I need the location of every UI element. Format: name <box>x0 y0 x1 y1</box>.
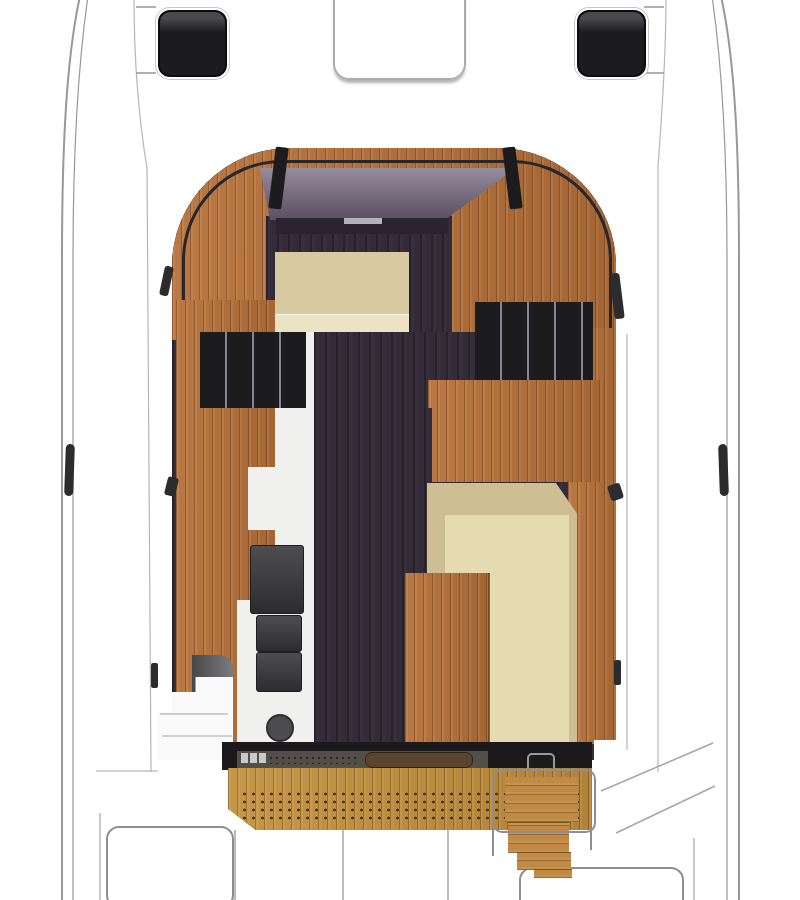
handrail-leg-port <box>492 829 494 856</box>
port-deck-hatch <box>158 10 227 77</box>
port-hull-inner-line <box>73 0 88 900</box>
starboard-cleat <box>718 444 729 496</box>
starboard-louvered-lockers <box>475 302 593 380</box>
galley-hatch-panel-2 <box>256 652 302 692</box>
stanchion-port-aft <box>151 663 158 688</box>
cabin-clip <box>172 148 616 760</box>
v-berth-mattress <box>275 252 409 314</box>
starboard-deck-edge-line <box>658 0 666 772</box>
companionway-step-low <box>517 852 571 870</box>
starboard-deck-hatch <box>577 10 646 77</box>
port-louvered-lockers <box>200 332 308 408</box>
boat-floorplan <box>0 0 800 900</box>
deck-patch-starboard <box>594 740 618 764</box>
grab-rod <box>365 752 473 768</box>
cockpit-seat-panel-port <box>107 827 233 900</box>
dinette-table <box>405 573 490 760</box>
handrail-leg-starboard <box>590 829 592 850</box>
step-handrail <box>492 769 596 833</box>
cabin <box>172 148 616 760</box>
stanchion-starboard-aft <box>614 660 621 685</box>
track-detail-dash-3 <box>259 753 266 763</box>
counter-front-edge <box>306 332 314 408</box>
track-detail-dash-1 <box>241 753 248 763</box>
center-deck-hatch-outline <box>333 0 466 80</box>
side-deck-step-line-1 <box>160 713 228 715</box>
companionway-step-bottom <box>534 869 572 878</box>
side-deck-step-line-2 <box>162 735 232 737</box>
transom-diagonal-line-2 <box>616 786 715 833</box>
dashboard-vent <box>344 218 382 224</box>
port-deck-edge-line <box>134 0 151 772</box>
galley-hatch-panel-1 <box>256 615 302 652</box>
starboard-cabinet-top <box>428 380 602 482</box>
galley-counter-notch <box>248 467 275 530</box>
track-detail-dash-2 <box>250 753 257 763</box>
cockpit-divider-lines <box>235 830 448 900</box>
stove <box>250 545 304 614</box>
track-rollers <box>268 755 360 764</box>
port-cleat <box>64 444 75 496</box>
sink <box>266 714 294 742</box>
